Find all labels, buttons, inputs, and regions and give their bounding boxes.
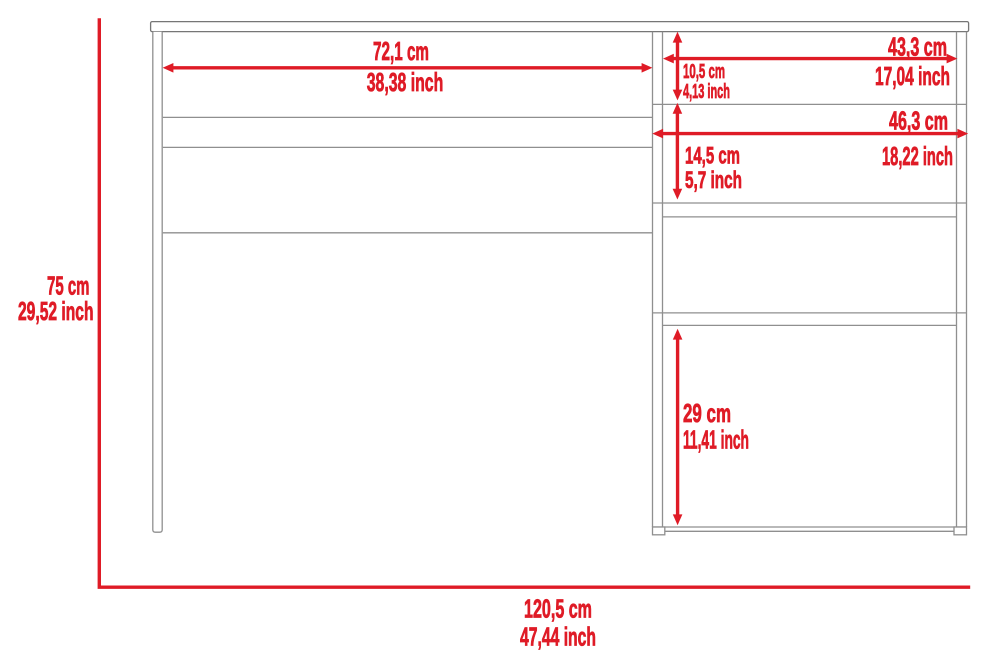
svg-text:14,5 cm: 14,5 cm [685,143,740,170]
svg-text:43,3 cm: 43,3 cm [888,32,947,62]
svg-text:38,38 inch: 38,38 inch [367,67,444,97]
svg-text:18,22 inch: 18,22 inch [882,141,953,171]
svg-text:11,41 inch: 11,41 inch [683,425,749,455]
svg-text:72,1 cm: 72,1 cm [373,36,429,66]
svg-text:4,13 inch: 4,13 inch [683,80,730,103]
svg-text:5,7 inch: 5,7 inch [685,167,742,194]
svg-text:29,52 inch: 29,52 inch [18,296,94,326]
svg-text:46,3 cm: 46,3 cm [889,106,948,136]
svg-text:17,04 inch: 17,04 inch [875,61,950,91]
svg-text:120,5 cm: 120,5 cm [524,594,592,624]
svg-text:47,44 inch: 47,44 inch [520,622,596,652]
svg-text:29 cm: 29 cm [683,398,731,428]
